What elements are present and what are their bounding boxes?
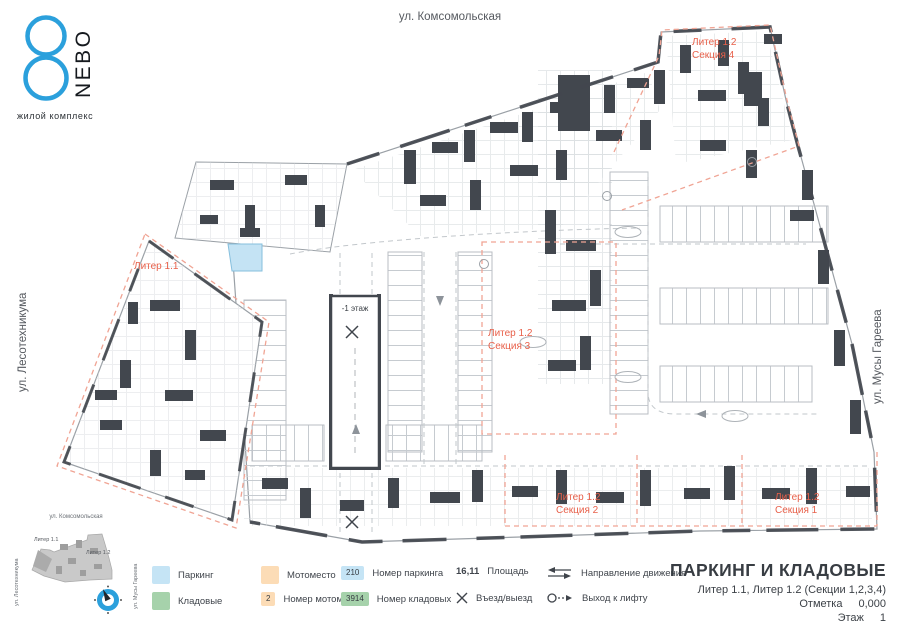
parking-swatch [152, 566, 170, 584]
section-label-liter12-s1: Литер 1.2 Секция 1 [775, 491, 819, 517]
compass-icon [94, 586, 122, 615]
storage-number-badge: 3914 [341, 592, 369, 606]
legend-parking: Паркинг [152, 566, 214, 584]
moto-swatch [261, 566, 279, 584]
minimap-drawing [10, 512, 142, 632]
legend-lift-exit: Выход к лифту [546, 592, 648, 604]
logo: NEBO жилой комплекс [14, 12, 134, 130]
elevation-value: 0,000 [858, 598, 886, 610]
legend-entry-exit: Въезд/выезд [456, 592, 532, 604]
logo-tagline: жилой комплекс [17, 111, 93, 121]
section-label-liter12-s2: Литер 1.2 Секция 2 [556, 491, 600, 517]
legend-storage: Кладовые [152, 592, 222, 610]
area-example-value: 16,11 [456, 566, 479, 577]
street-label-right: ул. Мусы Гареева [872, 309, 884, 404]
moto-number-badge: 2 [261, 592, 275, 606]
sheet-title: ПАРКИНГ И КЛАДОВЫЕ [670, 560, 886, 581]
legend-parking-number: 210 Номер паркинга [341, 566, 443, 580]
storage-swatch [152, 592, 170, 610]
minimap-liter12-label: Литер 1.2 [86, 550, 110, 556]
section-label-liter11: Литер 1.1 [134, 260, 178, 273]
legend-area: 16,11 Площадь [456, 566, 529, 577]
site-minimap: ул. Комсомольская ул. Лесотехникума ул. … [10, 512, 142, 632]
title-block: ПАРКИНГ И КЛАДОВЫЕ Литер 1.1, Литер 1.2 … [670, 560, 886, 624]
section-label-liter12-s3: Литер 1.2 Секция 3 [488, 327, 532, 353]
direction-arrows-icon [546, 566, 573, 580]
floor-row: Этаж 1 [670, 612, 886, 624]
legend-storage-number: 3914 Номер кладовых [341, 592, 451, 606]
minimap-street-top: ул. Комсомольская [10, 514, 142, 520]
logo-name: NEBO [72, 28, 96, 98]
legend-direction: Направление движения [546, 566, 686, 580]
ramp-label: -1 этаж [331, 304, 379, 313]
minimap-liter11-label: Литер 1.1 [34, 537, 58, 543]
ramp-to-minus1 [331, 296, 379, 468]
minimap-street-right: ул. Мусы Гареева [133, 564, 139, 609]
street-label-top: ул. Комсомольская [0, 11, 900, 23]
legend-moto: Мотоместо [261, 566, 336, 584]
elevation-row: Отметка 0,000 [670, 598, 886, 610]
logo-eight-icon [20, 14, 72, 106]
street-label-left: ул. Лесотехникума [17, 293, 29, 392]
section-label-liter12-s4: Литер 1.2 Секция 4 [692, 36, 736, 62]
sheet-subtitle: Литер 1.1, Литер 1.2 (Секции 1,2,3,4) [670, 584, 886, 596]
floor-value: 1 [880, 612, 886, 624]
lift-exit-icon [546, 592, 574, 604]
parking-number-badge: 210 [341, 566, 364, 580]
entry-exit-icon [456, 592, 468, 604]
minimap-street-left: ул. Лесотехникума [14, 558, 20, 606]
selected-parking-space[interactable] [228, 244, 262, 271]
